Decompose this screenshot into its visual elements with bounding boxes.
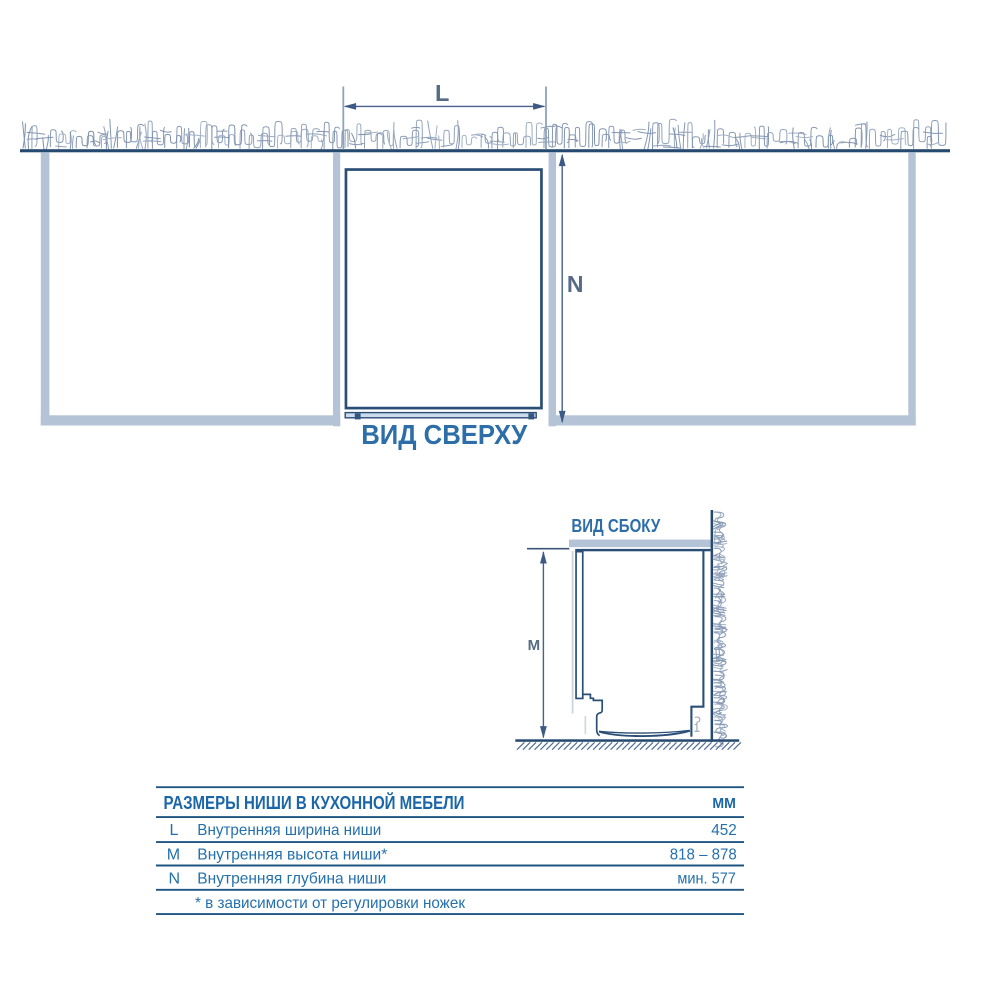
svg-text:Внутренняя ширина ниши: Внутренняя ширина ниши	[197, 822, 381, 839]
svg-text:N: N	[169, 870, 181, 887]
svg-text:Внутренняя высота ниши*: Внутренняя высота ниши*	[197, 846, 387, 863]
svg-text:ММ: ММ	[712, 795, 736, 812]
svg-text:L: L	[435, 80, 449, 106]
svg-text:452: 452	[711, 822, 737, 839]
svg-text:818 – 878: 818 – 878	[670, 846, 737, 863]
svg-text:* в зависимости от регулировки: * в зависимости от регулировки ножек	[195, 895, 466, 912]
svg-text:N: N	[567, 271, 584, 297]
svg-text:L: L	[170, 822, 179, 839]
svg-text:мин. 577: мин. 577	[677, 870, 736, 887]
svg-text:ВИД СВЕРХУ: ВИД СВЕРХУ	[361, 419, 528, 450]
svg-text:РАЗМЕРЫ НИШИ В КУХОННОЙ МЕБЕЛИ: РАЗМЕРЫ НИШИ В КУХОННОЙ МЕБЕЛИ	[164, 792, 465, 813]
svg-text:ВИД СБОКУ: ВИД СБОКУ	[571, 516, 660, 536]
svg-text:M: M	[528, 637, 541, 654]
svg-text:Внутренняя глубина ниши: Внутренняя глубина ниши	[197, 870, 386, 887]
svg-text:M: M	[167, 846, 180, 863]
